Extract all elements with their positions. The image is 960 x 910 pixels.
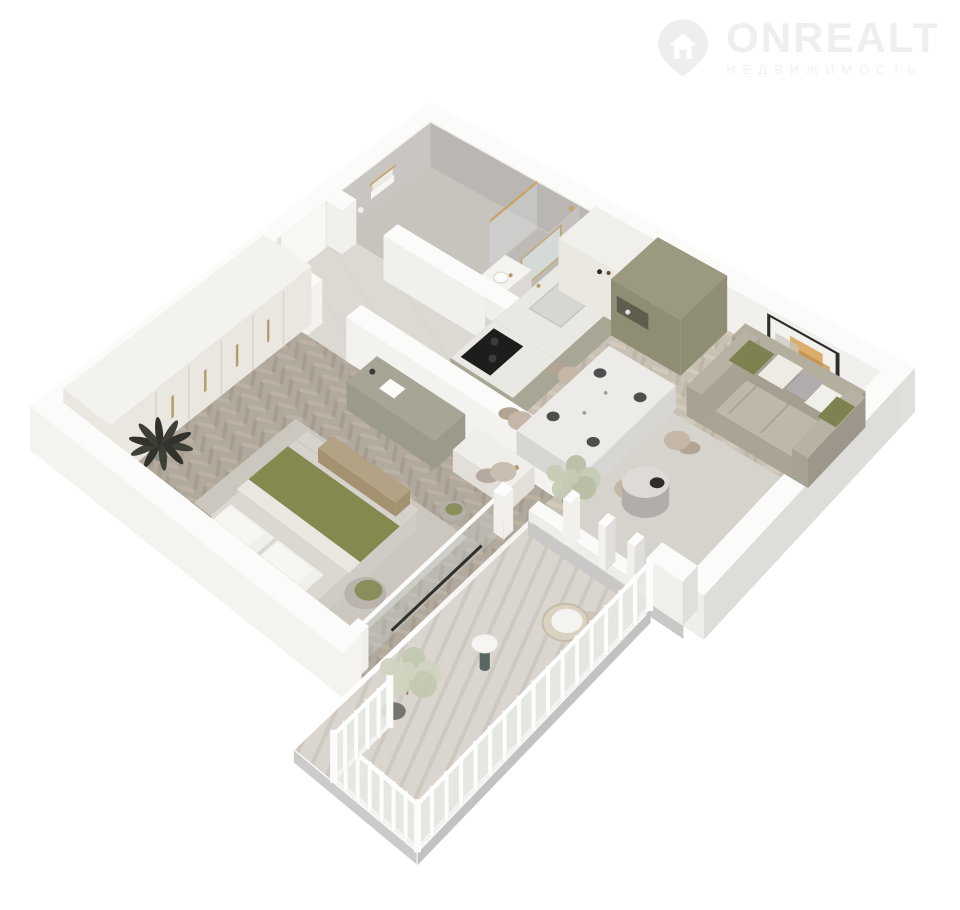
olive-tree-balcony-foliage bbox=[398, 662, 417, 681]
plate-4 bbox=[587, 437, 600, 447]
olive-tree-living-foliage bbox=[562, 469, 579, 486]
burner-2 bbox=[488, 354, 496, 362]
balcony-fence-east-slat bbox=[502, 711, 506, 761]
plate-3 bbox=[634, 392, 647, 402]
wardrobe-seam-2 bbox=[252, 315, 254, 370]
balcony-fence-south-slat bbox=[391, 782, 395, 832]
bottle-dark bbox=[597, 269, 602, 274]
wicker-chair-cushion bbox=[551, 609, 582, 633]
glass-1 bbox=[604, 391, 608, 395]
balcony-fence-south-slat bbox=[368, 762, 372, 812]
desk-pouf-cushion bbox=[445, 503, 462, 515]
toilet-paper-holder bbox=[358, 207, 364, 213]
balcony-fence-south-slat bbox=[403, 791, 407, 841]
window-post-1-side bbox=[563, 499, 570, 548]
door-post-north-side bbox=[504, 489, 513, 540]
balcony-fence-west-post bbox=[330, 730, 337, 783]
wardrobe-handle-1 bbox=[267, 319, 269, 343]
door-post-north-side bbox=[494, 491, 504, 540]
wardrobe-seam-4 bbox=[188, 365, 190, 420]
armchair-cushion bbox=[355, 580, 383, 601]
burner-1 bbox=[491, 338, 499, 346]
shower-head bbox=[569, 206, 574, 211]
coffee-table-tray bbox=[650, 477, 665, 488]
vanity-basin bbox=[494, 272, 508, 283]
bottle-amber bbox=[607, 271, 611, 275]
glass-2 bbox=[583, 411, 587, 415]
wardrobe-seam-3 bbox=[221, 340, 223, 395]
plate-1 bbox=[594, 368, 607, 378]
balcony-fence-west-post bbox=[386, 675, 393, 728]
logo-subtitle: НЕДВИЖИМОСТЬ bbox=[726, 62, 923, 77]
wardrobe-handle-2 bbox=[236, 344, 238, 368]
logo-title: ONREALT bbox=[726, 17, 940, 59]
balcony-fence-west-slat bbox=[354, 710, 358, 760]
onrealt-pin-icon bbox=[652, 16, 714, 78]
wardrobe-handle-4 bbox=[171, 395, 174, 419]
window-post-2-side bbox=[598, 523, 605, 572]
balcony-fence-east-post bbox=[646, 558, 653, 611]
vanity-tap bbox=[509, 273, 513, 277]
floorplan-3d-render bbox=[0, 0, 960, 910]
dresser-vase bbox=[369, 369, 375, 375]
balcony-fence-south-post bbox=[414, 799, 421, 852]
balcony-fence-east-slat bbox=[488, 726, 492, 776]
office-chair-seat bbox=[490, 462, 516, 482]
balcony-fence-east-slat bbox=[459, 756, 463, 806]
wardrobe-seam-1 bbox=[283, 291, 285, 346]
balcony-fence-south-slat bbox=[379, 772, 383, 822]
onrealt-logo: ONREALT НЕДВИЖИМОСТЬ bbox=[652, 16, 940, 78]
floorplan-render-page: ONREALT НЕДВИЖИМОСТЬ bbox=[0, 0, 960, 910]
shelf-dish bbox=[625, 310, 630, 315]
plate-2 bbox=[547, 412, 560, 422]
dining-chair-3 bbox=[664, 431, 690, 451]
wardrobe-handle-3 bbox=[204, 369, 206, 393]
balcony-table-top bbox=[472, 634, 498, 653]
kitchen-tap bbox=[536, 284, 540, 288]
